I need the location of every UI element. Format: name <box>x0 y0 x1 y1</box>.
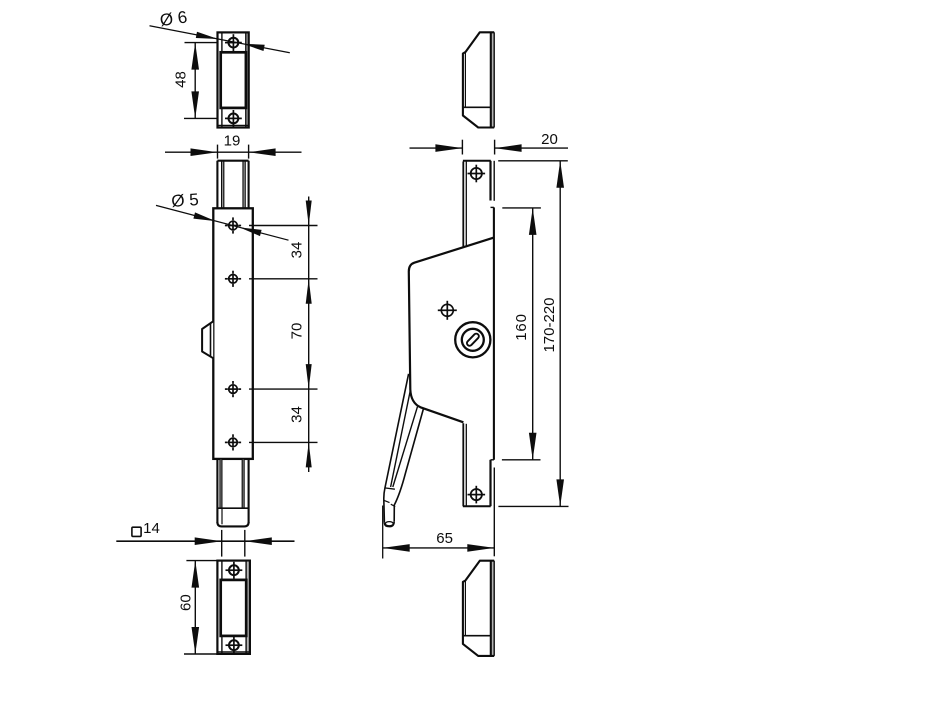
svg-text:19: 19 <box>224 133 241 150</box>
svg-text:70: 70 <box>288 323 305 340</box>
svg-text:34: 34 <box>288 242 305 259</box>
svg-text:14: 14 <box>143 520 160 537</box>
svg-text:Ø 6: Ø 6 <box>159 7 189 30</box>
svg-text:65: 65 <box>436 530 453 547</box>
svg-text:34: 34 <box>288 406 305 423</box>
svg-text:160: 160 <box>513 313 530 340</box>
svg-text:170-220: 170-220 <box>541 297 558 352</box>
svg-text:Ø 5: Ø 5 <box>171 190 200 211</box>
svg-text:48: 48 <box>173 71 190 88</box>
svg-text:20: 20 <box>541 131 558 148</box>
svg-text:60: 60 <box>177 594 194 611</box>
